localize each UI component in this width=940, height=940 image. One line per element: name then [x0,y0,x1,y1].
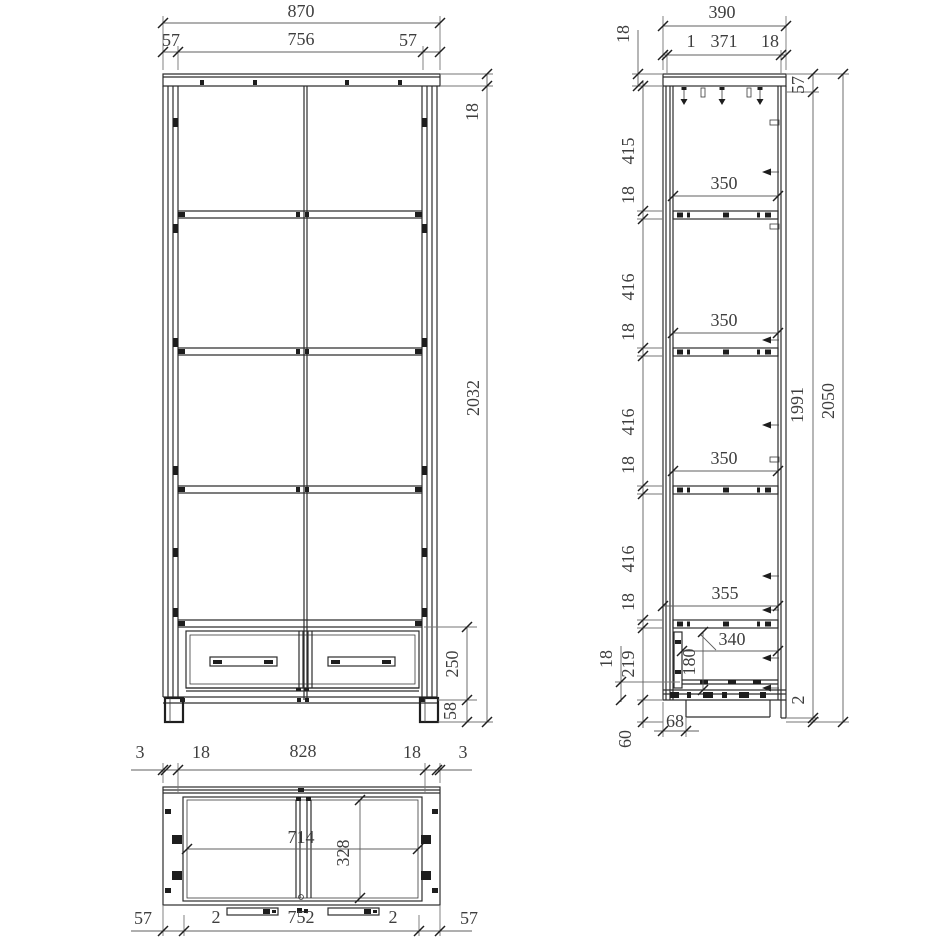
front-view [163,74,440,722]
dim-plan-bottom-left-gap: 2 [212,907,221,927]
front-center-divider [304,86,307,700]
dim-plan-drawer-width: 752 [288,907,315,927]
dim-front-top-thickness: 18 [462,103,482,121]
dim-plan-inner-width: 714 [288,827,315,847]
dim-side-shelf-2-thickness: 18 [618,323,638,341]
dim-plan-inner-depth: 328 [333,840,353,867]
front-shelves [178,211,422,627]
dim-side-shelf-3-thickness: 18 [618,456,638,474]
dim-side-back-panel: 18 [761,31,779,51]
dim-front-body-height: 2032 [463,380,483,416]
dim-side-body-height: 1991 [787,387,807,423]
dim-side-top-thickness: 18 [613,25,633,43]
front-drawers [186,631,419,691]
dim-side-drawer-front-height: 180 [679,649,699,676]
drawing-canvas: 870 57 756 57 18 2032 250 58 [0,0,940,940]
dim-side-drawer-depth: 340 [719,629,746,649]
dim-plan-left-overhang: 3 [136,742,145,762]
dim-side-front-gap: 1 [687,31,696,51]
dim-front-drawer-height: 250 [442,651,462,678]
dim-side-section-2: 416 [618,274,638,301]
side-view [663,74,786,718]
plan-hinges [165,809,438,893]
dim-side-top-rail: 57 [788,76,808,94]
dim-side-shelf-1-thickness: 18 [618,186,638,204]
dim-side-inner-depth: 371 [711,31,738,51]
front-side-panels [163,86,437,697]
dim-side-overall-height: 2050 [818,383,838,419]
dim-side-shelf-depth-1: 350 [711,173,738,193]
dim-side-shelf-4-thickness: 18 [618,593,638,611]
technical-drawing-page: 870 57 756 57 18 2032 250 58 [0,0,940,940]
dim-side-floor-gap: 2 [788,696,808,705]
side-view-dimensions: 390 1 371 18 18 415 18 416 18 416 18 416… [596,2,849,748]
dim-side-section-4: 416 [618,546,638,573]
dim-plan-right-overhang: 3 [459,742,468,762]
dim-side-plinth-inset: 68 [666,711,684,731]
dim-plan-bottom-right-gap: 2 [389,907,398,927]
front-view-dimensions: 870 57 756 57 18 2032 250 58 [158,1,493,727]
dim-side-section-3: 416 [618,409,638,436]
dim-side-rail-thickness: 18 [596,650,616,668]
dim-side-shelf-depth-3: 350 [711,448,738,468]
dim-front-left-panel: 57 [162,30,180,50]
side-bottom-rail [663,690,786,700]
front-hinge-marks [173,118,427,617]
dim-plan-bottom-left-panel: 57 [134,908,152,928]
side-shelf-4 [673,620,778,628]
dim-plan-left-panel: 18 [192,742,210,762]
plan-view [163,787,440,915]
dim-plan-interior-width: 828 [290,741,317,761]
dim-side-plinth-height: 60 [615,730,635,748]
side-shelf-1 [673,211,778,219]
side-plinth [686,700,770,717]
dim-front-overall-width: 870 [288,1,315,21]
side-top-screws [681,87,764,105]
dim-front-plinth-height: 58 [440,702,460,720]
side-shelf-2 [673,348,778,356]
dim-front-right-panel: 57 [399,30,417,50]
dim-plan-right-panel: 18 [403,742,421,762]
dim-front-opening: 756 [288,29,315,49]
dim-side-shelf-depth-2: 350 [711,310,738,330]
dim-side-overall-depth: 390 [709,2,736,22]
dim-side-drawer-section: 219 [618,651,638,678]
side-shelf-3 [673,486,778,494]
dim-side-section-1: 415 [618,138,638,165]
dim-side-bottom-shelf-depth: 355 [712,583,739,603]
dim-plan-bottom-right-panel: 57 [460,908,478,928]
